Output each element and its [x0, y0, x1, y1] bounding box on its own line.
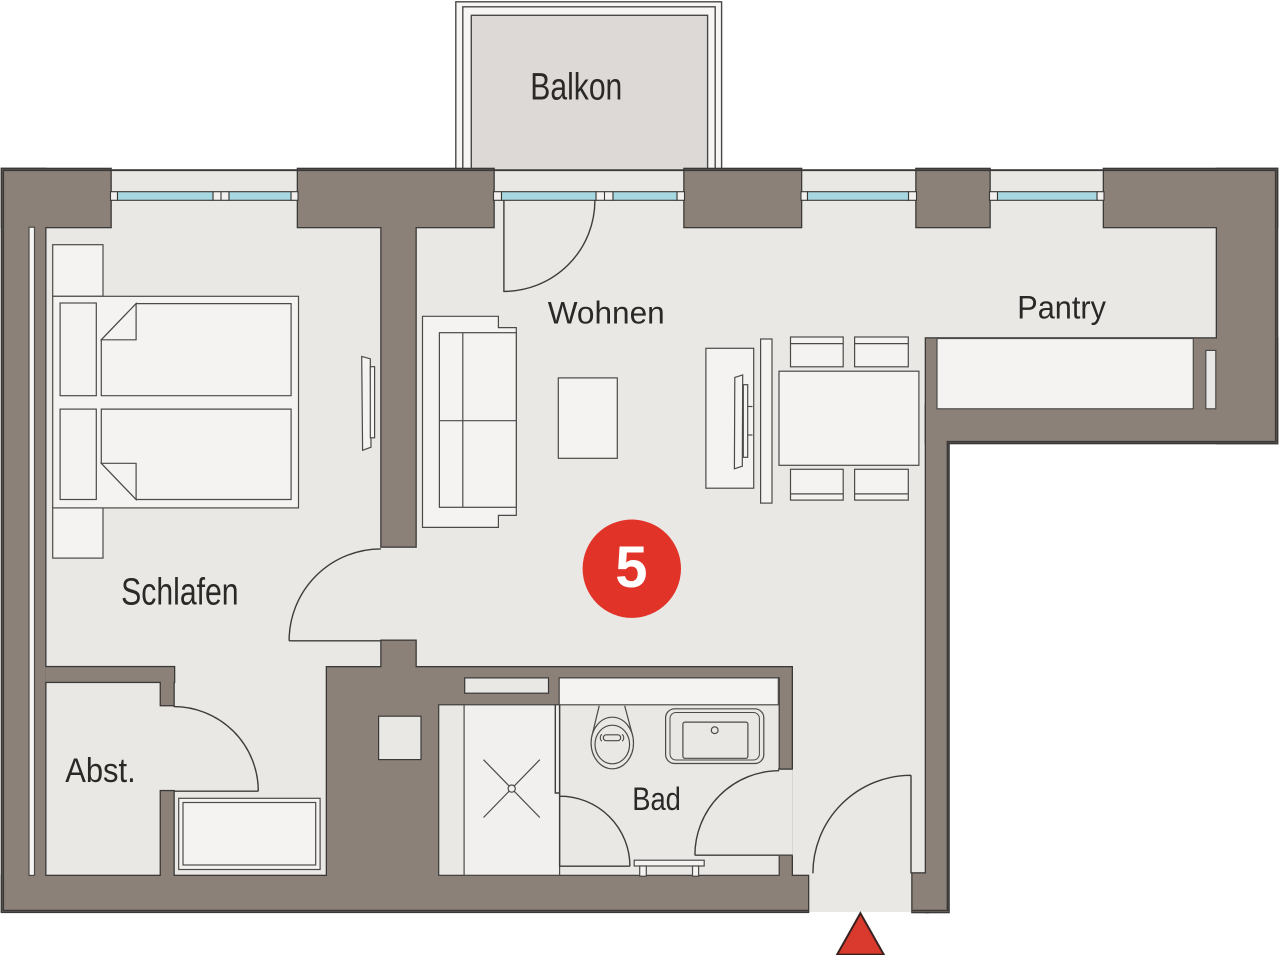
svg-text:5: 5	[615, 535, 647, 600]
svg-text:Bad: Bad	[632, 781, 681, 817]
svg-text:Pantry: Pantry	[1017, 289, 1106, 325]
svg-text:Abst.: Abst.	[65, 752, 136, 790]
svg-text:Balkon: Balkon	[530, 67, 622, 109]
svg-text:Wohnen: Wohnen	[548, 295, 665, 331]
svg-text:Schlafen: Schlafen	[121, 571, 239, 613]
